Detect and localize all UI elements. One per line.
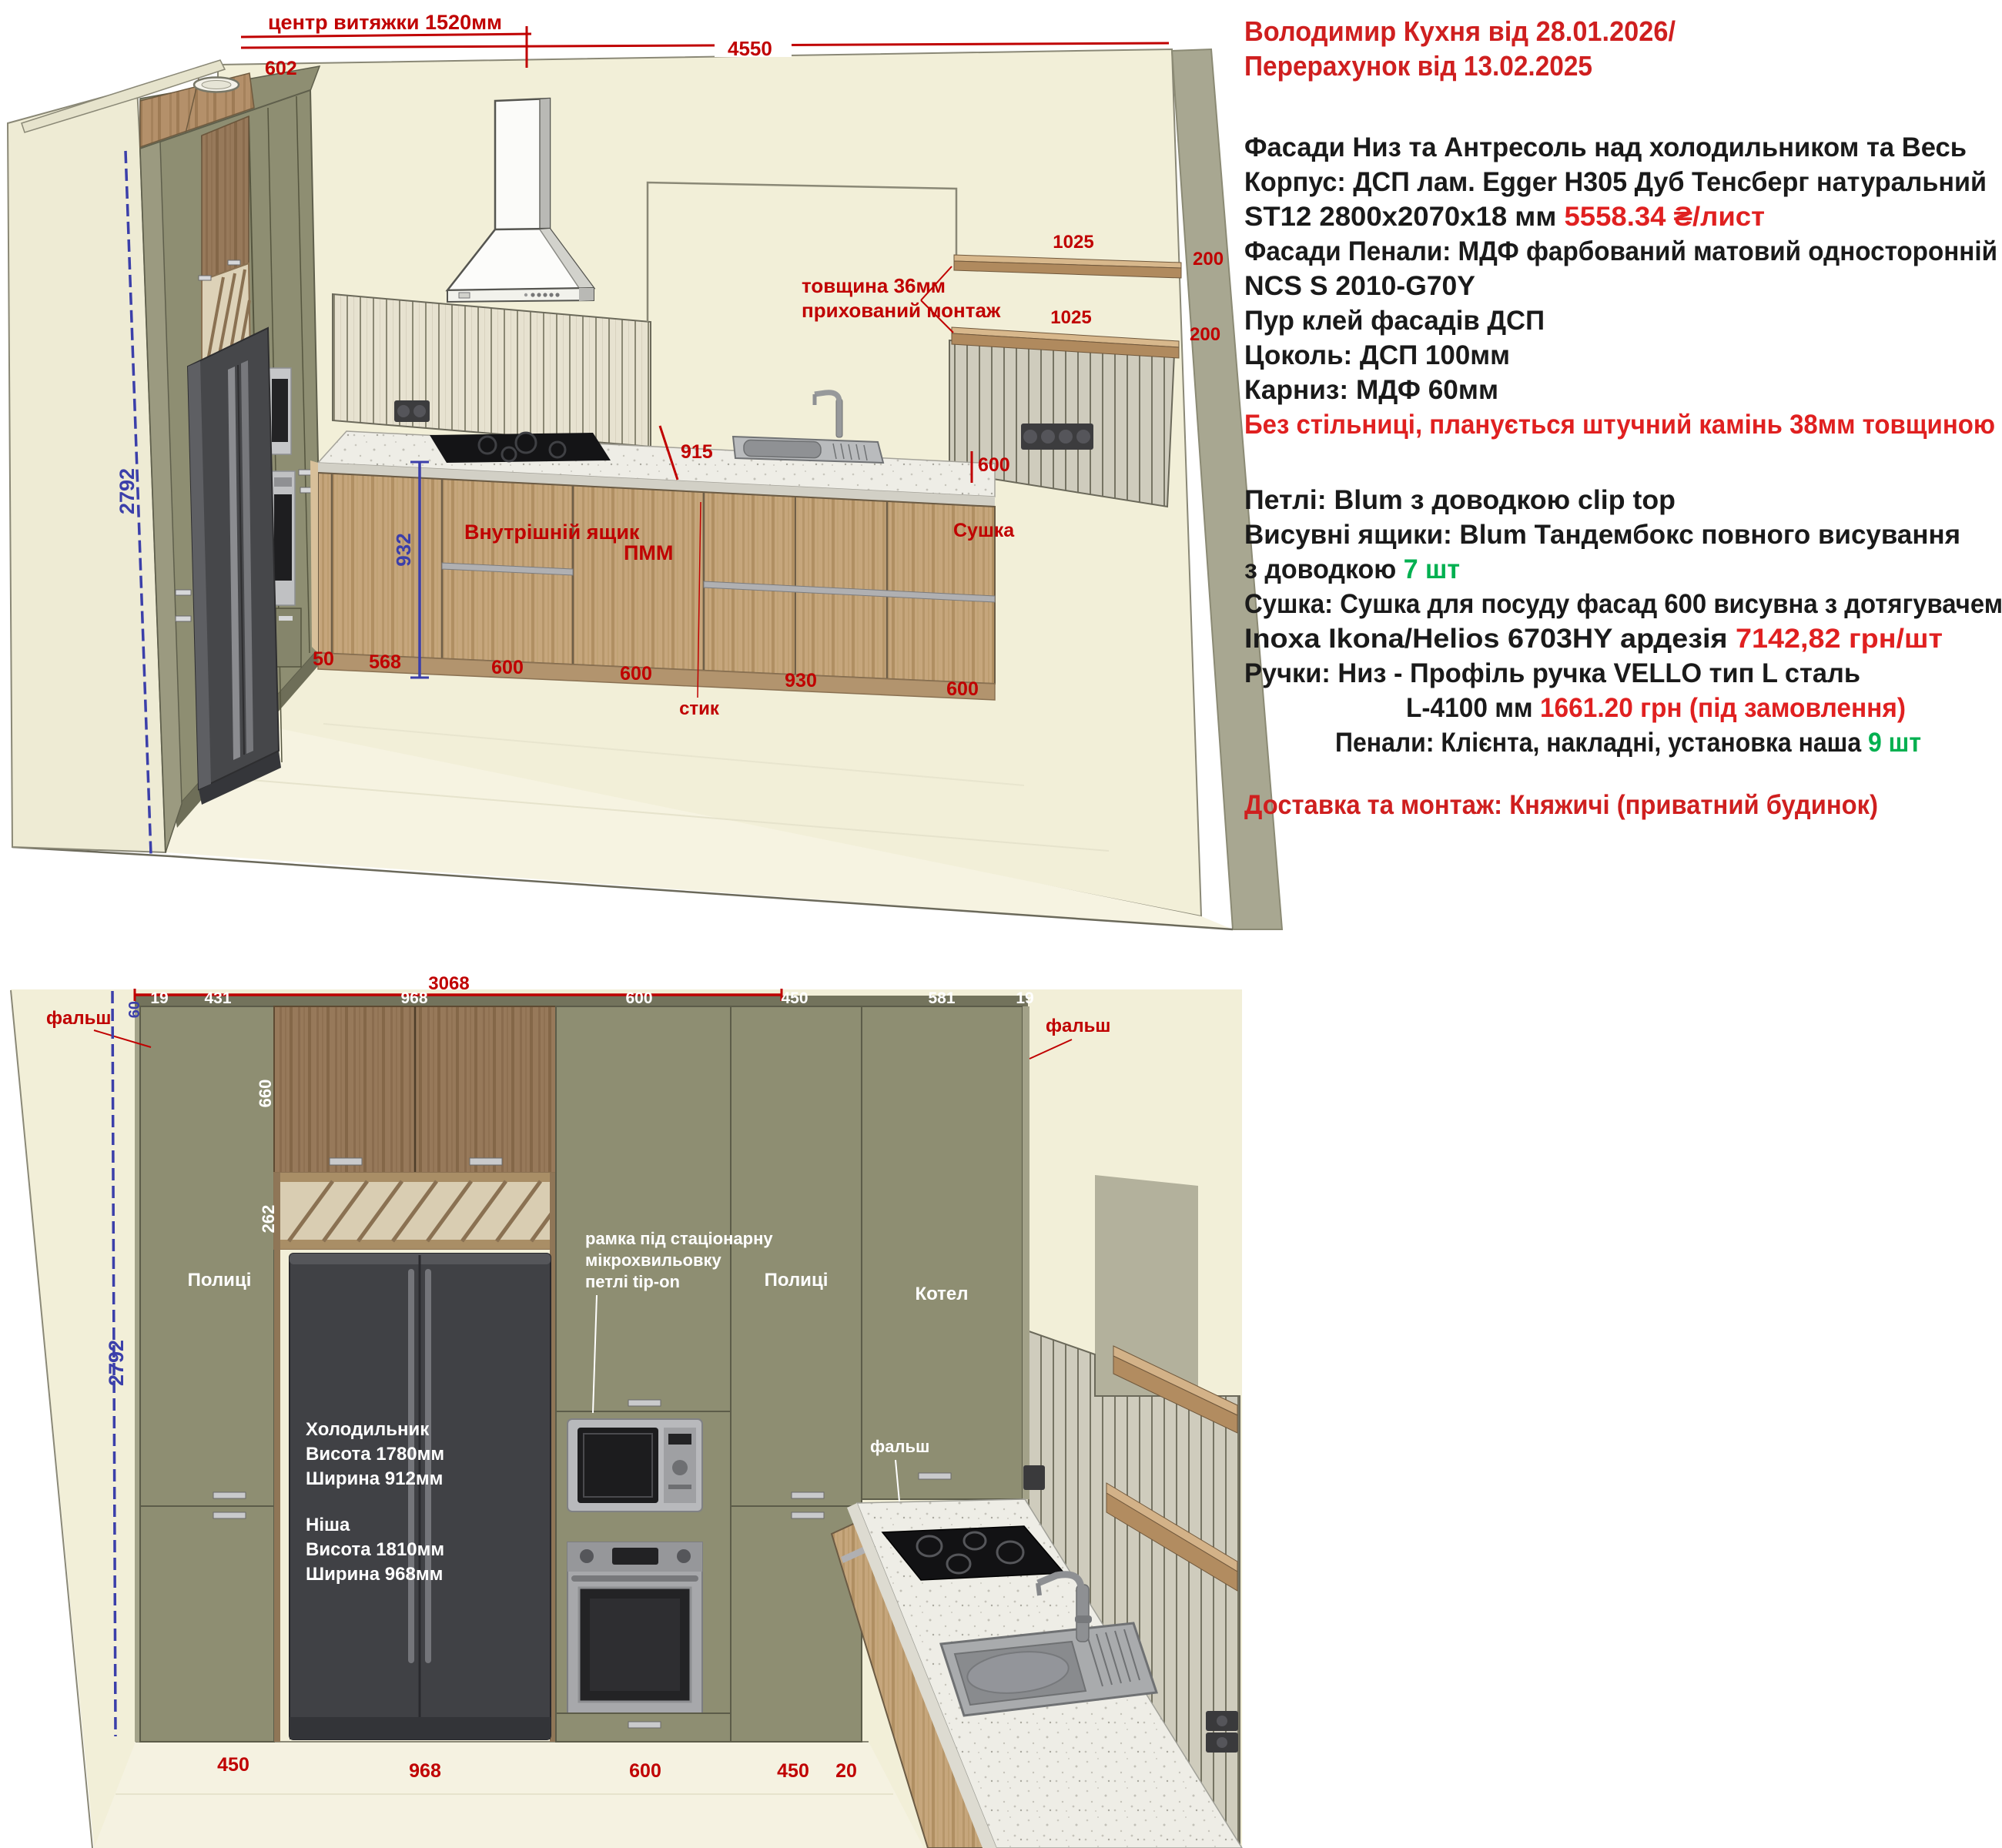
svg-text:Висота 1810мм: Висота 1810мм [306, 1539, 444, 1560]
svg-text:968: 968 [409, 1760, 441, 1782]
svg-text:20: 20 [835, 1760, 857, 1782]
svg-text:стик: стик [679, 698, 720, 719]
svg-text:фальш: фальш [1046, 1016, 1110, 1036]
svg-text:Inoxa Ikona/Helios 6703HY арде: Inoxa Ikona/Helios 6703HY ардезія 7142,8… [1244, 624, 1943, 654]
svg-text:660: 660 [256, 1080, 275, 1108]
svg-text:Холодильник: Холодильник [306, 1419, 430, 1440]
svg-text:товщина 36мм: товщина 36мм [802, 274, 946, 297]
svg-text:фальш: фальш [46, 1008, 111, 1029]
svg-text:600: 600 [946, 678, 979, 700]
svg-text:з доводкою 7 шт: з доводкою 7 шт [1244, 554, 1460, 584]
svg-text:фальш: фальш [870, 1437, 929, 1456]
svg-text:600: 600 [629, 1760, 661, 1782]
svg-text:Ширина 968мм: Ширина 968мм [306, 1564, 443, 1585]
svg-text:Ручки: Низ - Профіль ручка VEL: Ручки: Низ - Профіль ручка VELLO тип L с… [1244, 658, 1860, 688]
svg-text:600: 600 [620, 663, 652, 685]
svg-text:Сушка: Сушка [953, 520, 1015, 541]
svg-text:Сушка: Сушка для посуду фасад: Сушка: Сушка для посуду фасад 600 висувн… [1244, 589, 2002, 619]
svg-text:200: 200 [1193, 249, 1224, 269]
svg-text:Фасади Пенали: МДФ фарбований: Фасади Пенали: МДФ фарбований матовий од… [1244, 236, 1997, 266]
svg-text:600: 600 [978, 454, 1010, 476]
svg-text:ST12 2800х2070х18 мм 5558.34 ₴: ST12 2800х2070х18 мм 5558.34 ₴/лист [1244, 202, 1765, 232]
svg-text:Пенали: Клієнта, накладні, уст: Пенали: Клієнта, накладні, установка наш… [1335, 728, 1921, 758]
svg-text:Володимир Кухня від 28.01.2026: Володимир Кухня від 28.01.2026/ [1244, 15, 1676, 47]
svg-text:рамка під стаціонарну: рамка під стаціонарну [585, 1229, 773, 1248]
svg-text:Котел: Котел [915, 1284, 968, 1304]
svg-text:19: 19 [1016, 989, 1033, 1007]
svg-text:200: 200 [1190, 324, 1220, 345]
svg-text:Без стільниці, планується штуч: Без стільниці, планується штучний камінь… [1244, 410, 1995, 440]
svg-text:4550: 4550 [728, 37, 772, 60]
svg-text:L-4100 мм 1661.20 грн (під зам: L-4100 мм 1661.20 грн (під замовлення) [1406, 693, 1906, 723]
svg-text:Доставка та монтаж: Княжичі (п: Доставка та монтаж: Княжичі (приватний б… [1244, 790, 1878, 820]
svg-text:Висота 1780мм: Висота 1780мм [306, 1444, 444, 1465]
svg-text:450: 450 [217, 1754, 249, 1776]
svg-text:915: 915 [681, 441, 713, 463]
svg-text:50: 50 [313, 648, 334, 670]
svg-text:1025: 1025 [1053, 232, 1093, 253]
svg-text:центр витяжки 1520мм: центр витяжки 1520мм [268, 11, 502, 34]
svg-text:Висувні ящики: Blum Тандембокс: Висувні ящики: Blum Тандембокс повного в… [1244, 520, 1960, 550]
svg-text:Внутрішній ящик: Внутрішній ящик [464, 521, 640, 544]
svg-text:Карниз: МДФ 60мм: Карниз: МДФ 60мм [1244, 375, 1498, 405]
svg-text:600: 600 [625, 989, 652, 1007]
svg-text:прихований монтаж: прихований монтаж [802, 299, 1001, 322]
svg-text:1025: 1025 [1050, 307, 1091, 328]
svg-text:932: 932 [392, 533, 415, 566]
svg-text:3068: 3068 [428, 973, 469, 994]
svg-text:262: 262 [259, 1205, 278, 1234]
svg-text:NCS S 2010-G70Y: NCS S 2010-G70Y [1244, 271, 1475, 301]
svg-text:968: 968 [400, 989, 427, 1007]
svg-text:581: 581 [928, 989, 955, 1007]
svg-text:мікрохвильовку: мікрохвильовку [585, 1250, 721, 1270]
svg-text:Цоколь: ДСП 100мм: Цоколь: ДСП 100мм [1244, 340, 1510, 370]
svg-text:Петлі: Blum з доводкою clip to: Петлі: Blum з доводкою clip top [1244, 485, 1676, 515]
svg-text:60: 60 [126, 1001, 143, 1018]
svg-text:Корпус: ДСП лам. Egger H305 Ду: Корпус: ДСП лам. Egger H305 Дуб Тенсберг… [1244, 167, 1987, 197]
svg-text:450: 450 [777, 1760, 809, 1782]
svg-text:431: 431 [204, 989, 231, 1007]
svg-text:Полиці: Полиці [188, 1270, 252, 1291]
svg-text:петлі tip-on: петлі tip-on [585, 1272, 680, 1291]
svg-text:2792: 2792 [115, 468, 139, 514]
svg-text:Пур клей фасадів ДСП: Пур клей фасадів ДСП [1244, 306, 1545, 336]
svg-text:Перерахунок від 13.02.2025: Перерахунок від 13.02.2025 [1244, 50, 1592, 82]
svg-text:450: 450 [781, 989, 808, 1007]
svg-text:Полиці: Полиці [765, 1270, 829, 1291]
svg-text:568: 568 [369, 651, 401, 673]
svg-text:930: 930 [785, 670, 817, 691]
svg-text:Ширина 912мм: Ширина 912мм [306, 1468, 443, 1489]
svg-text:Ніша: Ніша [306, 1515, 350, 1535]
svg-text:2792: 2792 [105, 1340, 128, 1386]
svg-text:602: 602 [265, 58, 297, 79]
svg-text:19: 19 [150, 989, 168, 1007]
svg-text:Фасади Низ та Антресоль над хо: Фасади Низ та Антресоль над холодильнико… [1244, 132, 1967, 162]
svg-text:600: 600 [491, 657, 524, 678]
svg-text:ПММ: ПММ [624, 541, 673, 564]
